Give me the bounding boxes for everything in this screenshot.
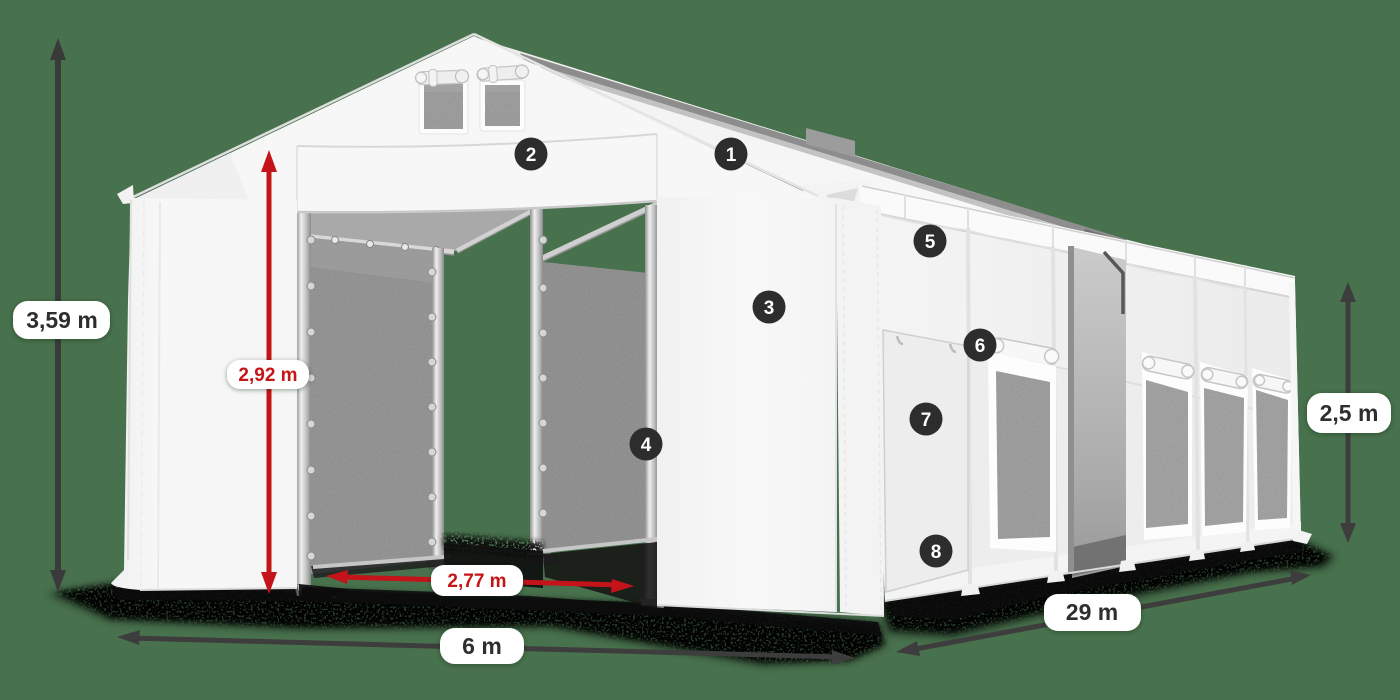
svg-text:6 m: 6 m	[462, 633, 502, 659]
svg-text:4: 4	[641, 435, 652, 456]
svg-text:2,5 m: 2,5 m	[1320, 400, 1379, 426]
svg-text:2,77 m: 2,77 m	[447, 571, 506, 592]
svg-text:5: 5	[925, 232, 936, 253]
svg-text:29 m: 29 m	[1066, 599, 1118, 625]
svg-text:3: 3	[764, 298, 775, 319]
svg-text:7: 7	[921, 410, 932, 431]
svg-text:1: 1	[726, 145, 737, 166]
svg-text:8: 8	[931, 542, 942, 563]
svg-text:2: 2	[526, 145, 537, 166]
svg-text:3,59 m: 3,59 m	[26, 307, 98, 333]
svg-text:6: 6	[975, 336, 986, 357]
svg-text:2,92 m: 2,92 m	[238, 365, 297, 386]
